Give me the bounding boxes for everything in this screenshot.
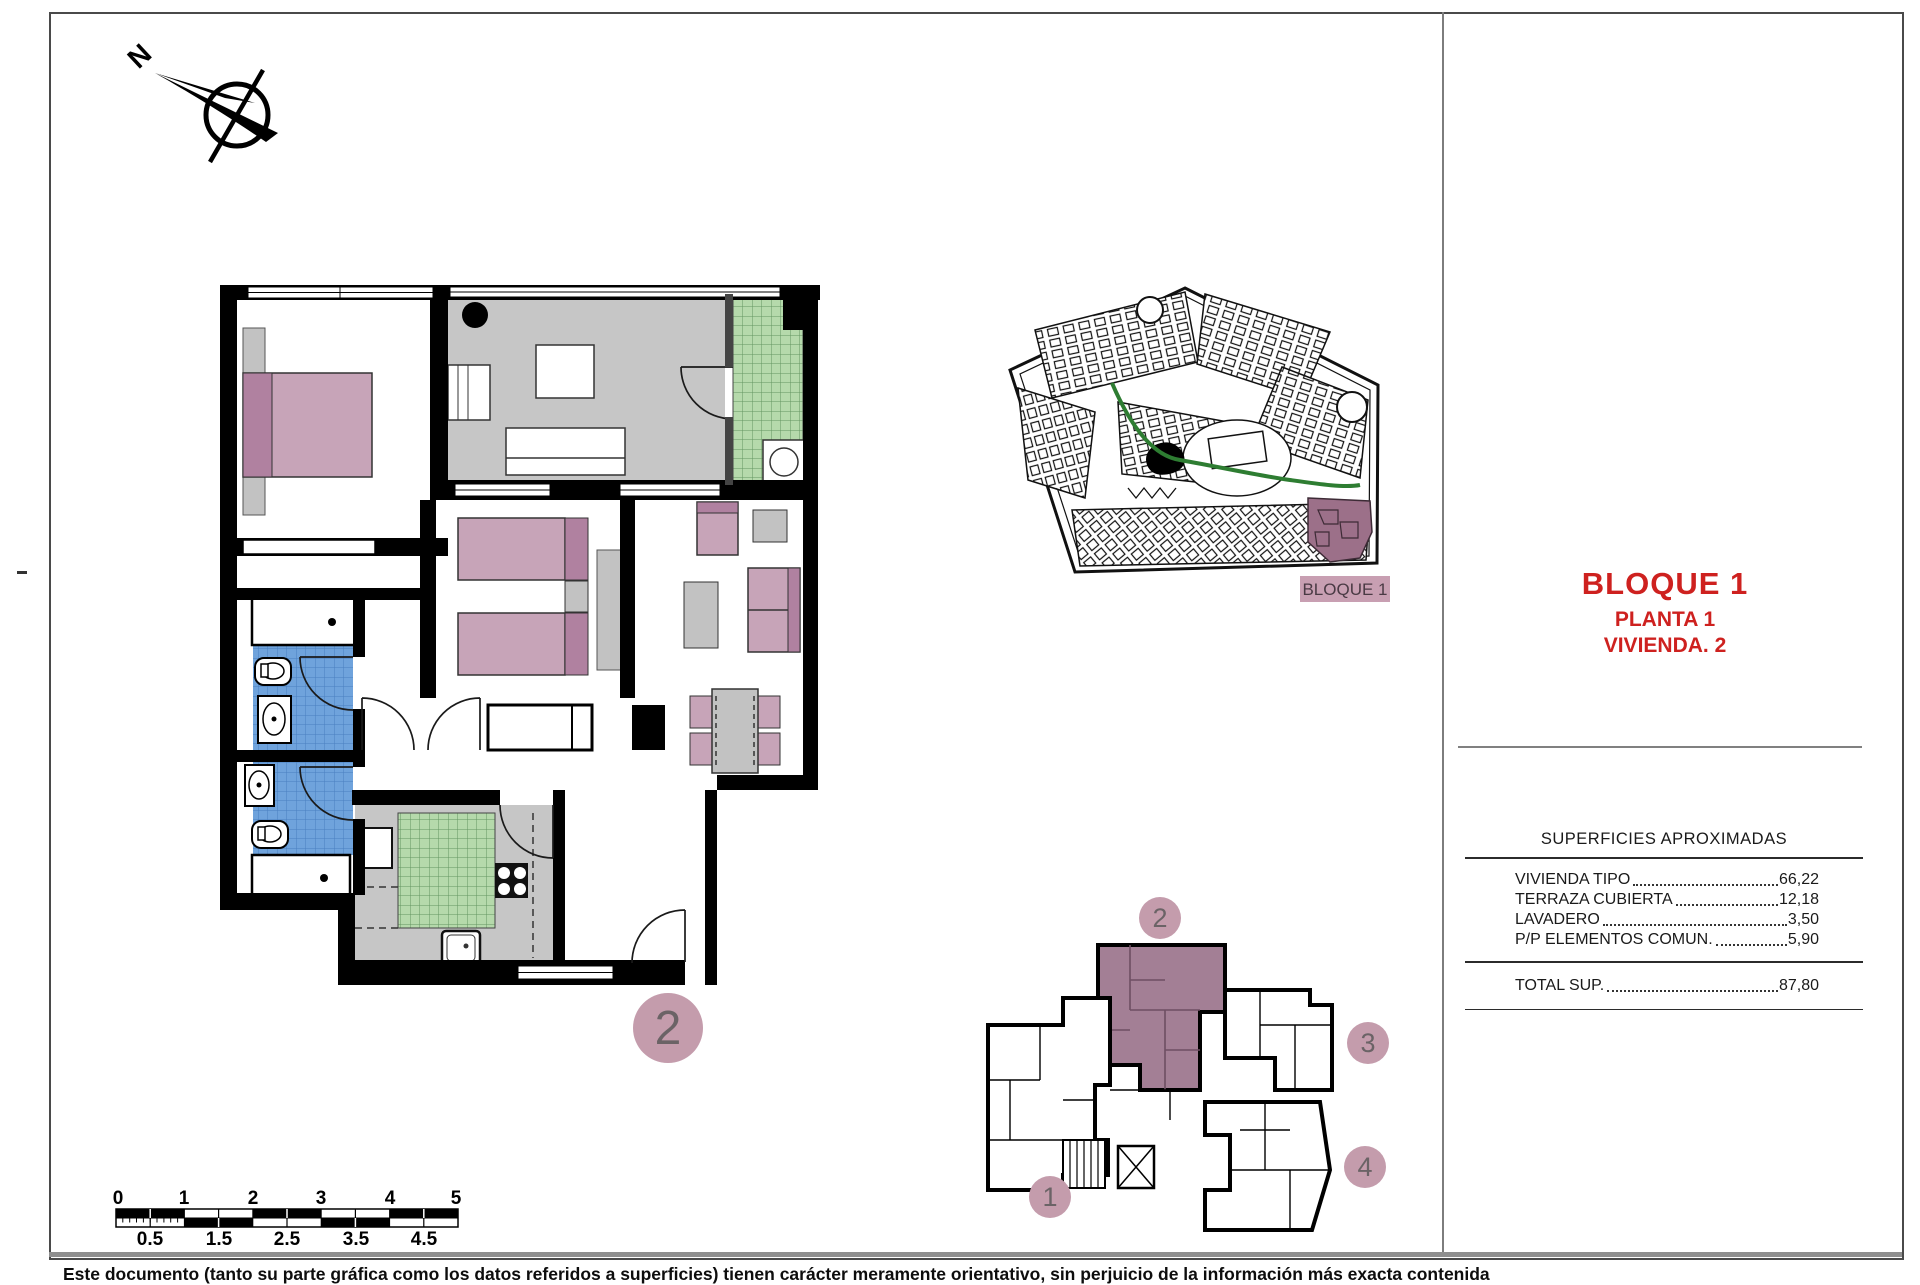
surface-row: LAVADERO 3,50 [1515,909,1819,929]
dining-chair [690,733,712,765]
surface-row: TERRAZA CUBIERTA 12,18 [1515,889,1819,909]
floor-plan: 2 [220,278,820,1073]
surface-total-label: TOTAL SUP. [1515,977,1604,995]
surface-total-row: TOTAL SUP. 87,80 [1515,975,1819,995]
bed-pillow [565,518,588,580]
scale-bar: 0 1 2 3 4 5 0.5 1.5 2.5 3.5 4.5 [112,1188,464,1253]
key-unit-3 [1225,990,1332,1090]
svg-text:1: 1 [1042,1182,1057,1212]
roundabout [1137,297,1163,323]
dining-table [712,689,758,773]
site-plan: BLOQUE 1 [1000,270,1400,615]
title-panel-divider [1442,12,1444,1256]
surface-row: VIVIENDA TIPO 66,22 [1515,869,1819,889]
svg-text:0: 0 [113,1188,124,1209]
terrace-bench [506,428,625,475]
surfaces-table: SUPERFICIES APROXIMADAS VIVIENDA TIPO 66… [1465,830,1863,1010]
surface-label: VIVIENDA TIPO [1515,871,1630,889]
key-unit-2 [1098,945,1225,1090]
svg-text:1.5: 1.5 [206,1229,233,1248]
terrace-table [536,345,594,398]
single-bed [458,518,565,580]
svg-text:3: 3 [1360,1028,1375,1058]
surface-value: 3,50 [1788,911,1819,929]
svg-text:4: 4 [385,1188,396,1209]
surfaces-title: SUPERFICIES APROXIMADAS [1465,830,1863,849]
key-unit-4 [1205,1102,1330,1230]
surface-label: LAVADERO [1515,911,1600,929]
terrace-light [462,302,488,328]
title-block: BLOQUE 1 PLANTA 1 VIVIENDA. 2 [1470,566,1860,658]
svg-text:3: 3 [316,1188,327,1209]
surface-value: 5,90 [1788,931,1819,949]
compass-n-label: N [121,40,157,74]
unit-number: 2 [655,1002,682,1055]
disclaimer-text: Este documento (tanto su parte gráfica c… [63,1264,1863,1285]
floor-title: PLANTA 1 [1470,608,1860,632]
left-margin-tick [17,571,27,574]
north-arrow-icon: N [105,40,300,190]
block-title: BLOQUE 1 [1470,566,1860,602]
svg-text:1: 1 [179,1188,190,1209]
kitchen-tiles [398,813,495,928]
svg-text:3.5: 3.5 [343,1229,370,1248]
svg-text:4.5: 4.5 [411,1229,438,1248]
terrace-shelf [448,365,490,420]
bathtub [252,597,355,645]
svg-text:5: 5 [451,1188,462,1209]
bed-pillow [243,373,272,477]
title-block-divider [1458,746,1862,748]
surface-label: TERRAZA CUBIERTA [1515,891,1673,909]
nightstand [565,581,588,612]
site-label: BLOQUE 1 [1302,580,1387,599]
surface-value: 66,22 [1779,871,1819,889]
surface-value: 12,18 [1779,891,1819,909]
scale-numbers: 0 1 2 3 4 5 [113,1188,462,1209]
svg-text:2.5: 2.5 [274,1229,301,1248]
key-plan: 1 2 3 4 [980,890,1400,1245]
svg-text:2: 2 [248,1188,259,1209]
side-table [753,510,787,542]
coffee-table [684,582,718,648]
svg-text:4: 4 [1357,1152,1372,1182]
surface-row: P/P ELEMENTOS COMUN. 5,90 [1515,929,1819,949]
hall-closet [488,705,592,750]
dining-chair [758,733,780,765]
roundabout [1337,392,1367,422]
unit-title: VIVIENDA. 2 [1470,634,1860,658]
svg-text:2: 2 [1152,903,1167,933]
single-bed [458,613,565,675]
surface-total-value: 87,80 [1779,977,1819,995]
svg-text:0.5: 0.5 [137,1229,164,1248]
bed-pillow [565,613,588,675]
surface-label: P/P ELEMENTOS COMUN. [1515,931,1713,949]
dining-chair [690,696,712,728]
scale-half-labels: 0.5 1.5 2.5 3.5 4.5 [137,1229,438,1248]
dining-chair [758,696,780,728]
